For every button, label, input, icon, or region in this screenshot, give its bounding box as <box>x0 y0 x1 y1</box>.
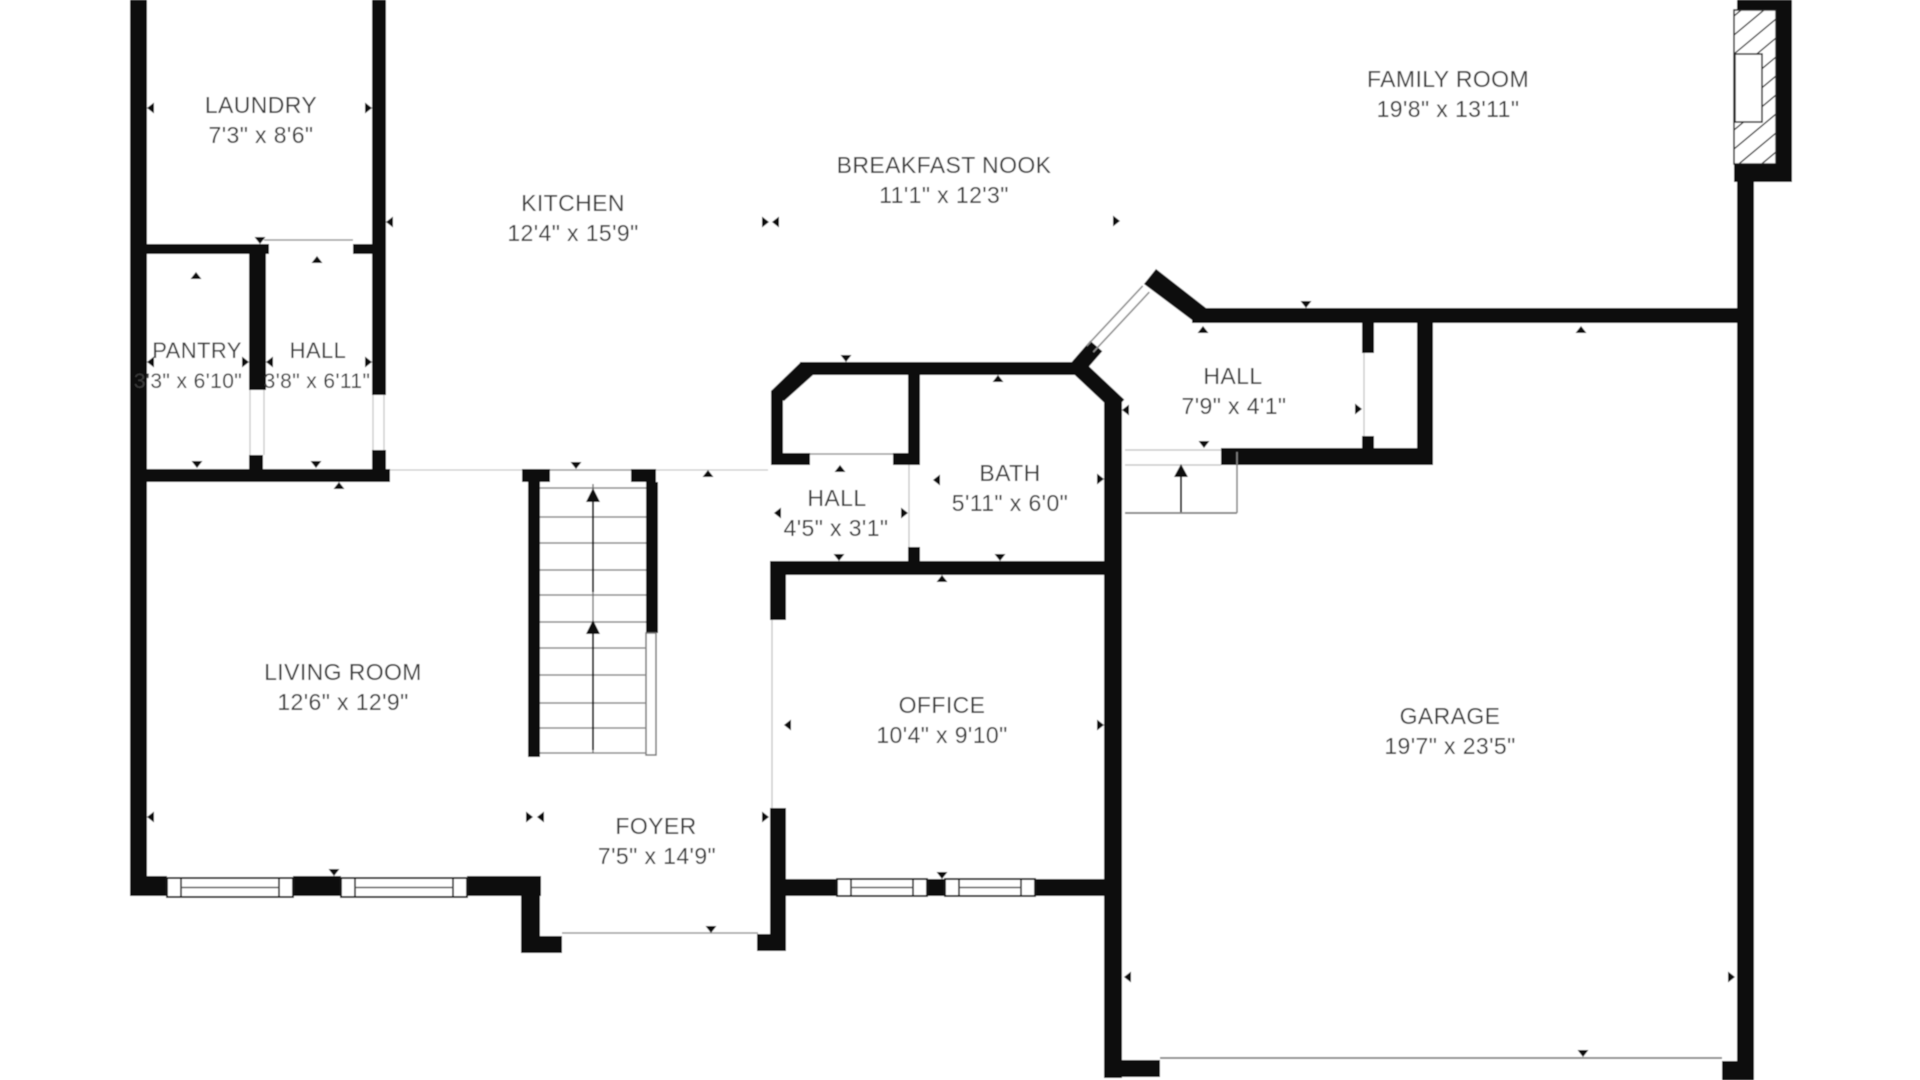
svg-text:LAUNDRY: LAUNDRY <box>205 92 317 118</box>
svg-text:19'7" x 23'5": 19'7" x 23'5" <box>1384 733 1515 759</box>
svg-text:HALL: HALL <box>290 338 347 363</box>
svg-text:12'4" x 15'9": 12'4" x 15'9" <box>507 220 638 246</box>
svg-text:7'5" x 14'9": 7'5" x 14'9" <box>598 843 716 869</box>
svg-text:FOYER: FOYER <box>615 813 696 839</box>
svg-text:11'1" x 12'3": 11'1" x 12'3" <box>879 182 1009 208</box>
svg-text:3'3" x 6'10": 3'3" x 6'10" <box>134 370 242 393</box>
svg-text:7'9" x 4'1": 7'9" x 4'1" <box>1182 393 1287 419</box>
svg-text:BATH: BATH <box>979 460 1040 486</box>
svg-text:PANTRY: PANTRY <box>152 338 242 363</box>
svg-text:5'11" x 6'0": 5'11" x 6'0" <box>952 490 1068 516</box>
svg-text:HALL: HALL <box>1203 363 1262 389</box>
svg-text:GARAGE: GARAGE <box>1400 703 1501 729</box>
svg-text:4'5" x 3'1": 4'5" x 3'1" <box>784 515 889 541</box>
svg-text:7'3" x 8'6": 7'3" x 8'6" <box>209 122 314 148</box>
svg-text:10'4" x 9'10": 10'4" x 9'10" <box>876 722 1007 748</box>
svg-text:FAMILY ROOM: FAMILY ROOM <box>1367 66 1529 92</box>
svg-text:12'6" x 12'9": 12'6" x 12'9" <box>277 689 408 715</box>
svg-text:OFFICE: OFFICE <box>899 692 986 718</box>
svg-text:19'8" x 13'11": 19'8" x 13'11" <box>1377 96 1520 122</box>
svg-text:BREAKFAST NOOK: BREAKFAST NOOK <box>837 152 1052 178</box>
svg-text:HALL: HALL <box>807 485 866 511</box>
svg-text:3'8" x 6'11": 3'8" x 6'11" <box>264 370 371 393</box>
svg-text:KITCHEN: KITCHEN <box>521 190 625 216</box>
svg-text:LIVING ROOM: LIVING ROOM <box>264 659 422 685</box>
